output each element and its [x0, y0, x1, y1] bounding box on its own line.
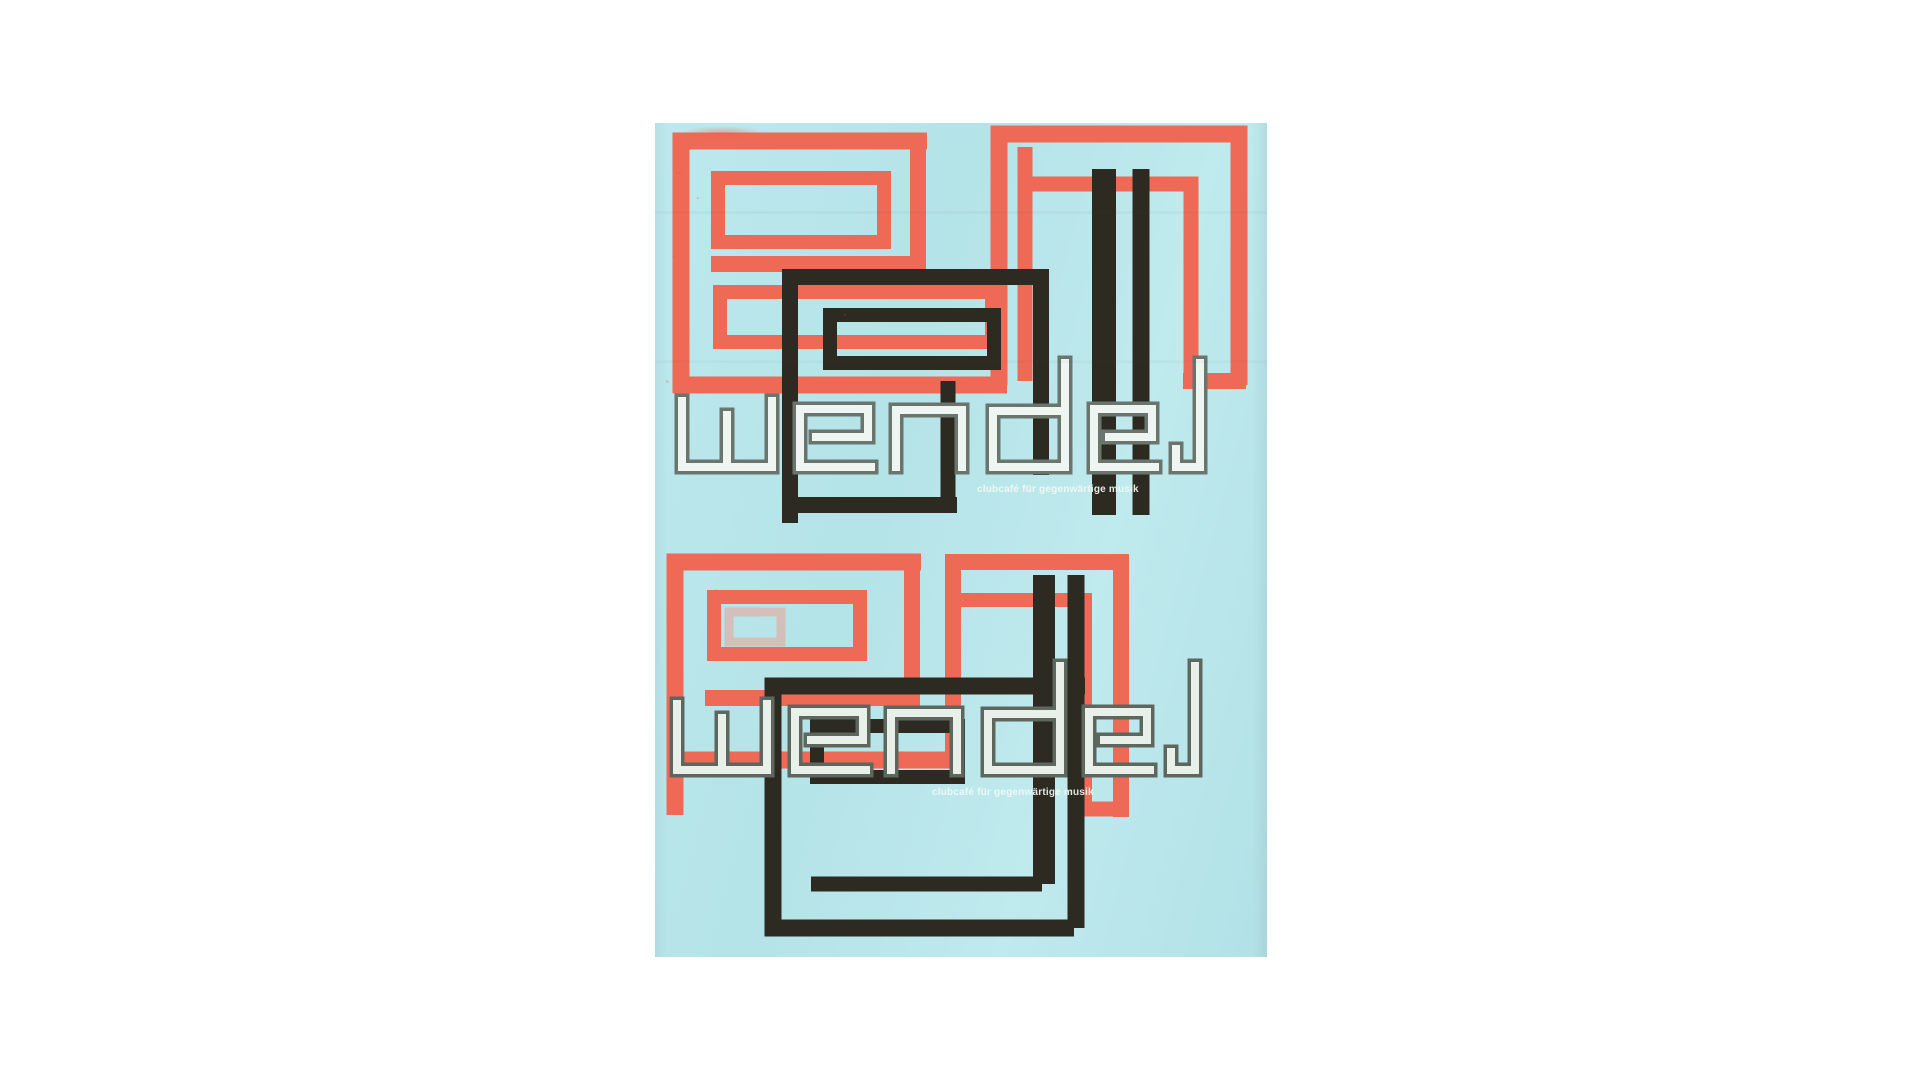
poster: clubcafé für gegenwärtige musik — [655, 123, 1267, 957]
maze-red-top — [673, 134, 1246, 393]
poster-art: clubcafé für gegenwärtige musik — [655, 123, 1267, 957]
scan-background: clubcafé für gegenwärtige musik — [0, 0, 1920, 1080]
tagline-top: clubcafé für gegenwärtige musik — [977, 484, 1139, 495]
tagline-bottom: clubcafé für gegenwärtige musik — [932, 787, 1094, 798]
